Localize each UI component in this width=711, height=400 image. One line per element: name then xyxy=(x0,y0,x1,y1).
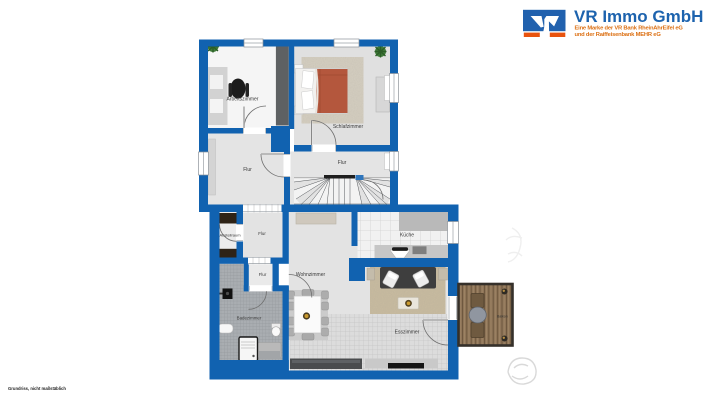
svg-text:Schlafzimmer: Schlafzimmer xyxy=(333,124,364,130)
svg-text:Küche: Küche xyxy=(400,233,414,239)
svg-text:Abstellraum: Abstellraum xyxy=(219,233,241,238)
svg-text:Flur: Flur xyxy=(258,231,266,236)
svg-text:Flur: Flur xyxy=(259,272,267,277)
svg-text:Grundriss, nicht maßstäblich: Grundriss, nicht maßstäblich xyxy=(8,386,66,391)
svg-text:VR Immo GmbH: VR Immo GmbH xyxy=(574,7,703,26)
svg-text:Balkon: Balkon xyxy=(497,315,508,319)
svg-text:Wohnzimmer: Wohnzimmer xyxy=(296,272,326,278)
svg-text:Esszimmer: Esszimmer xyxy=(395,330,420,336)
svg-text:Flur: Flur xyxy=(338,160,347,166)
svg-text:und der Raiffeisenbank MEHR eG: und der Raiffeisenbank MEHR eG xyxy=(575,32,662,38)
svg-text:Eine Marke der VR Bank RheinAh: Eine Marke der VR Bank RheinAhrEifel eG xyxy=(575,26,684,32)
svg-text:Arbeitszimmer: Arbeitszimmer xyxy=(227,97,259,103)
svg-text:Flur: Flur xyxy=(243,167,252,173)
svg-text:Badezimmer: Badezimmer xyxy=(237,316,262,321)
